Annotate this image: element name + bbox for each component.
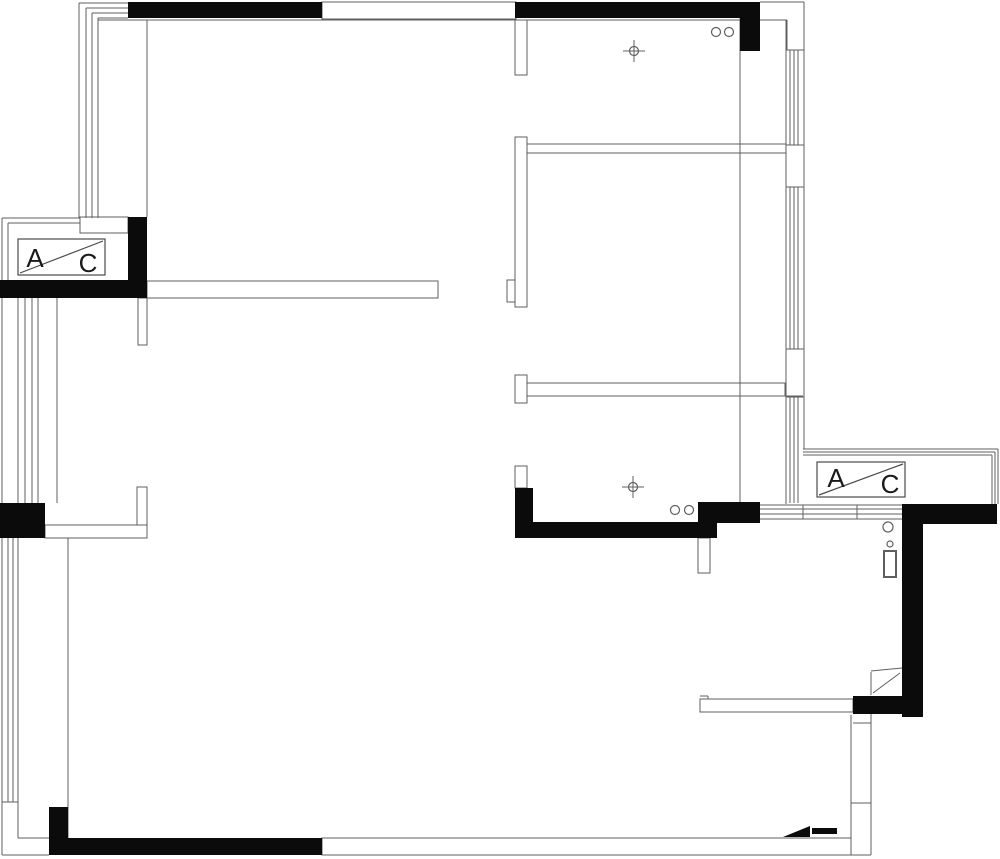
wall-bottom-black [49,838,322,855]
column-kitchen [515,488,533,523]
wall-stub-below-kitchen-bar [698,538,710,573]
column-left-mid [0,503,45,538]
pipe-circle [685,506,694,515]
pipe-circle [671,506,680,515]
wall-right-bottom-bar [853,696,922,714]
column-bottomleft [49,807,68,840]
wall-stub-above-kitchen-column [515,466,527,488]
left-step-under-window [80,217,128,233]
bottom-wall-white [322,838,851,855]
wall-middle-tee-stub [515,375,527,403]
ac-right-letter-c: C [881,469,900,499]
wall-stub-below-topleft-room [138,298,147,345]
wall-notch-middle [507,280,515,302]
column-top-wall-right [515,2,760,18]
pipe-circle [712,28,721,37]
wall-kitchen-bar [515,522,717,538]
left-ell-wall-vertical [137,487,147,525]
wall-topleft-room-bottom [147,281,438,298]
column-top-wall-left [128,2,322,18]
water-heater-body [884,551,896,577]
ac-right-letter-a: A [827,463,845,493]
door-leaf-top [871,668,902,671]
wall-band-topright-room-bottom [527,144,786,153]
floor-plan-drawing: A C A C [0,0,1000,859]
wall-kitchen-bar-upper [698,502,760,523]
floor-plan-canvas: A C A C [0,0,1000,859]
drain-circle [883,522,893,532]
threshold-bar [812,828,837,834]
top-window-band [322,2,516,19]
plan-geometry-layer [0,2,998,855]
door-swing [873,673,900,693]
water-heater-knob [887,541,893,547]
hallway-wall [700,699,853,712]
threshold-triangle [783,826,810,837]
ac-unit-label-right: A C [817,462,905,499]
ac-left-letter-a: A [26,243,44,273]
wall-middle-vertical [515,137,527,307]
ac-left-letter-c: C [79,248,98,278]
wall-band-midroom-bottom [527,383,785,396]
wall-left-ac-bottom [0,280,147,298]
left-ell-wall-horizontal [45,525,147,538]
ac-unit-label-left: A C [18,239,105,278]
column-topright-corner [740,18,760,51]
wall-stub-middle-top [515,20,527,75]
wall-right-ell-vertical [902,504,923,717]
pipe-circle [725,28,734,37]
